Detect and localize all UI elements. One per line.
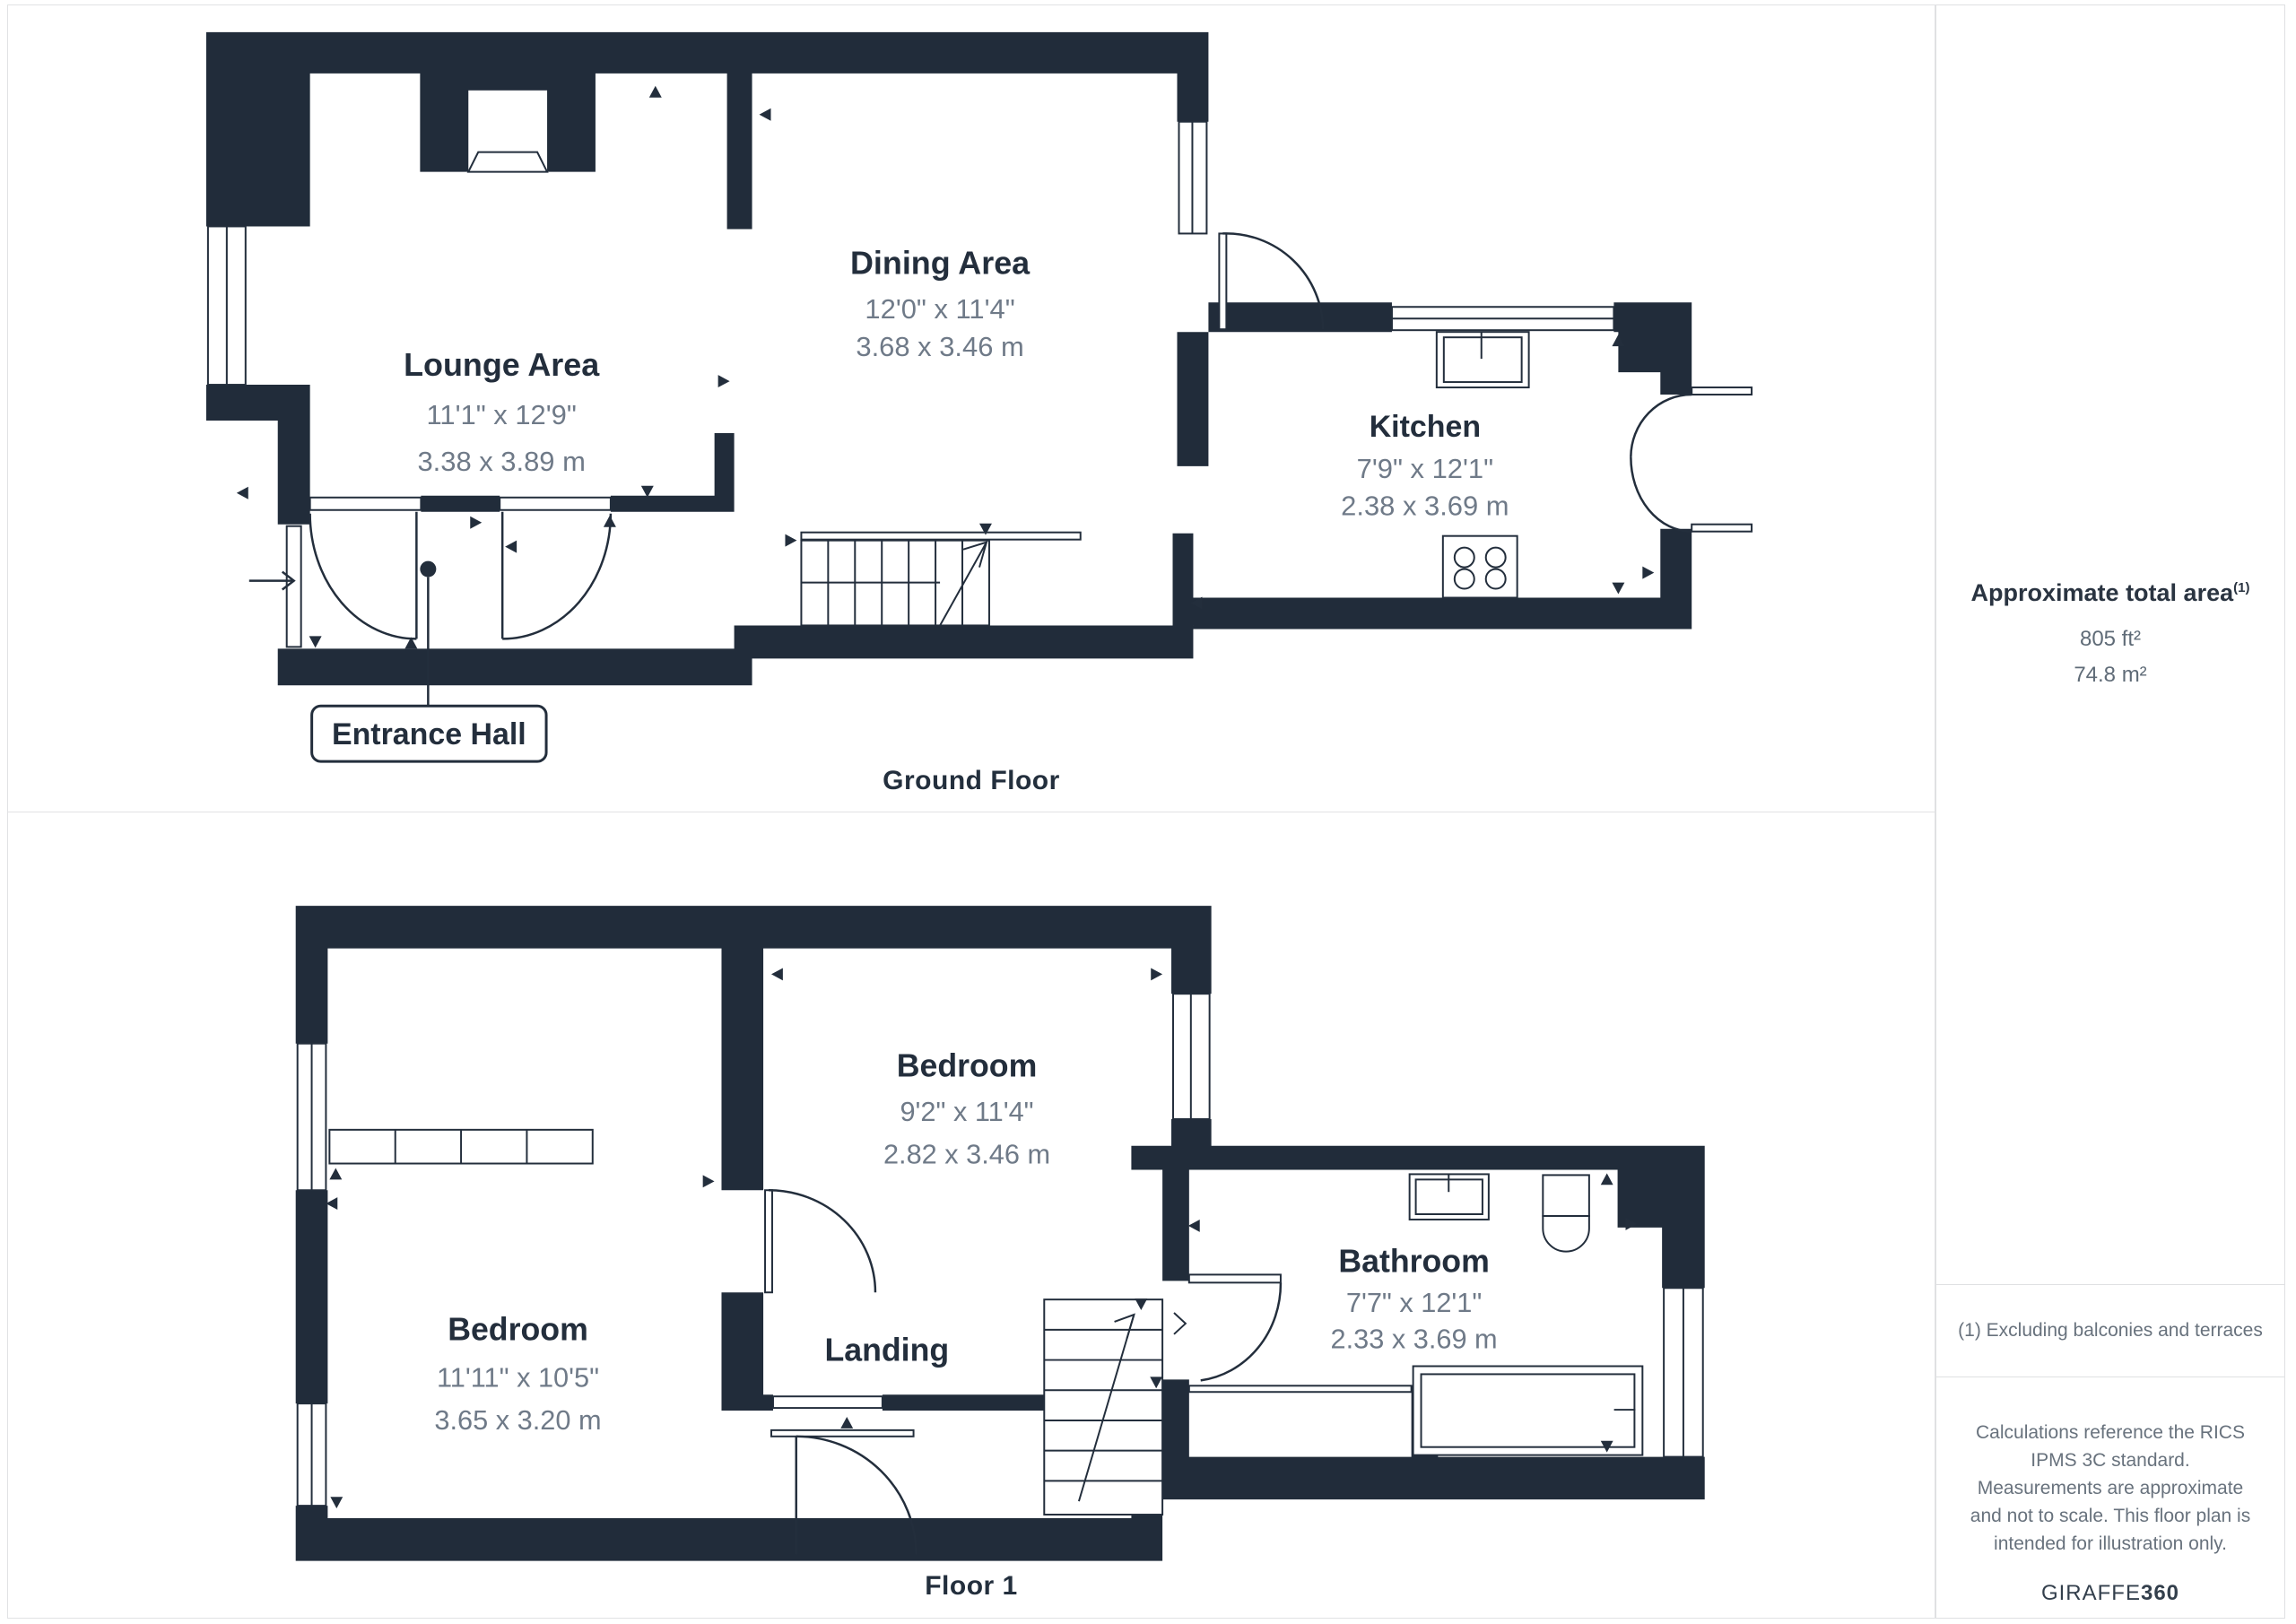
room-name: Kitchen xyxy=(1370,410,1481,444)
brand-suffix: 360 xyxy=(2141,1581,2179,1605)
room-name: Bedroom xyxy=(448,1312,588,1348)
toilet xyxy=(1543,1175,1589,1251)
footnote-text: (1) Excluding balconies and terraces xyxy=(1940,1320,2281,1342)
ground-floor-plan: Entrance Hall Lounge Area 11'1" x 12'9" … xyxy=(8,5,1935,811)
room-imperial: 12'0" x 11'4" xyxy=(865,293,1014,325)
dining-label: Dining Area 12'0" x 11'4" 3.68 x 3.46 m xyxy=(850,244,1031,362)
entrance-hall-label: Entrance Hall xyxy=(332,717,526,751)
total-area-sqm: 74.8 m² xyxy=(1936,663,2284,688)
floorplan-screenshot: Entrance Hall Lounge Area 11'1" x 12'9" … xyxy=(0,0,2296,1624)
kitchen-hob xyxy=(1443,536,1518,598)
room-imperial: 9'2" x 11'4" xyxy=(900,1096,1033,1127)
kitchen-sink xyxy=(1437,332,1529,387)
ground-doors xyxy=(310,233,1752,638)
ground-floor-panel: Entrance Hall Lounge Area 11'1" x 12'9" … xyxy=(7,4,1935,812)
floor-1-caption: Floor 1 xyxy=(8,1571,1935,1602)
lounge-label: Lounge Area 11'1" x 12'9" 3.38 x 3.89 m xyxy=(404,346,600,477)
room-metric: 2.38 x 3.69 m xyxy=(1341,491,1509,522)
room-name: Lounge Area xyxy=(404,346,600,383)
ground-door-frames xyxy=(287,498,611,647)
room-name: Bathroom xyxy=(1338,1243,1489,1279)
landing-label: Landing xyxy=(824,1333,949,1368)
bedroom-left-label: Bedroom 11'11" x 10'5" 3.65 x 3.20 m xyxy=(434,1312,601,1436)
room-metric: 2.82 x 3.46 m xyxy=(883,1139,1050,1170)
room-imperial: 7'7" x 12'1" xyxy=(1346,1287,1482,1318)
sidebar-footnote-box: (1) Excluding balconies and terraces xyxy=(1935,1284,2285,1377)
total-area-sqft: 805 ft² xyxy=(1936,627,2284,652)
room-imperial: 7'9" x 12'1" xyxy=(1357,453,1493,484)
floor1-walls xyxy=(296,906,1705,1560)
bathroom-label: Bathroom 7'7" x 12'1" 2.33 x 3.69 m xyxy=(1331,1243,1498,1354)
giraffe360-logo: GIRAFFE360 xyxy=(1936,1581,2284,1606)
room-imperial: 11'11" x 10'5" xyxy=(437,1361,599,1393)
room-name: Dining Area xyxy=(850,244,1031,281)
room-metric: 2.33 x 3.69 m xyxy=(1331,1324,1498,1355)
disclaimer-text: Calculations reference the RICS IPMS 3C … xyxy=(1968,1419,2253,1558)
ground-floor-caption: Ground Floor xyxy=(8,766,1935,796)
floor-1-panel: Bedroom 11'11" x 10'5" 3.65 x 3.20 m Bed… xyxy=(7,812,1935,1619)
approximate-total-area-title: Approximate total area(1) xyxy=(1936,579,2284,607)
room-name: Bedroom xyxy=(897,1047,1038,1083)
area-footnote-ref: (1) xyxy=(2233,580,2249,595)
entrance-arrow-icon xyxy=(249,572,294,590)
floor-1-plan: Bedroom 11'11" x 10'5" 3.65 x 3.20 m Bed… xyxy=(8,812,1935,1618)
room-metric: 3.65 x 3.20 m xyxy=(434,1404,601,1436)
brand-name: GIRAFFE xyxy=(2041,1581,2141,1605)
room-imperial: 11'1" x 12'9" xyxy=(427,399,577,430)
bedroom-right-label: Bedroom 9'2" x 11'4" 2.82 x 3.46 m xyxy=(883,1047,1050,1169)
sidebar-area-box: Approximate total area(1) 805 ft² 74.8 m… xyxy=(1935,4,2285,1285)
room-metric: 3.68 x 3.46 m xyxy=(856,331,1023,362)
wardrobe xyxy=(329,1130,592,1164)
kitchen-label: Kitchen 7'9" x 12'1" 2.38 x 3.69 m xyxy=(1341,410,1509,522)
bathroom-sink xyxy=(1410,1174,1489,1220)
staircase-ground xyxy=(801,533,1080,626)
room-metric: 3.38 x 3.89 m xyxy=(417,446,585,477)
sidebar-disclaimer-box: Calculations reference the RICS IPMS 3C … xyxy=(1935,1376,2285,1619)
fireplace-niche xyxy=(468,91,547,172)
